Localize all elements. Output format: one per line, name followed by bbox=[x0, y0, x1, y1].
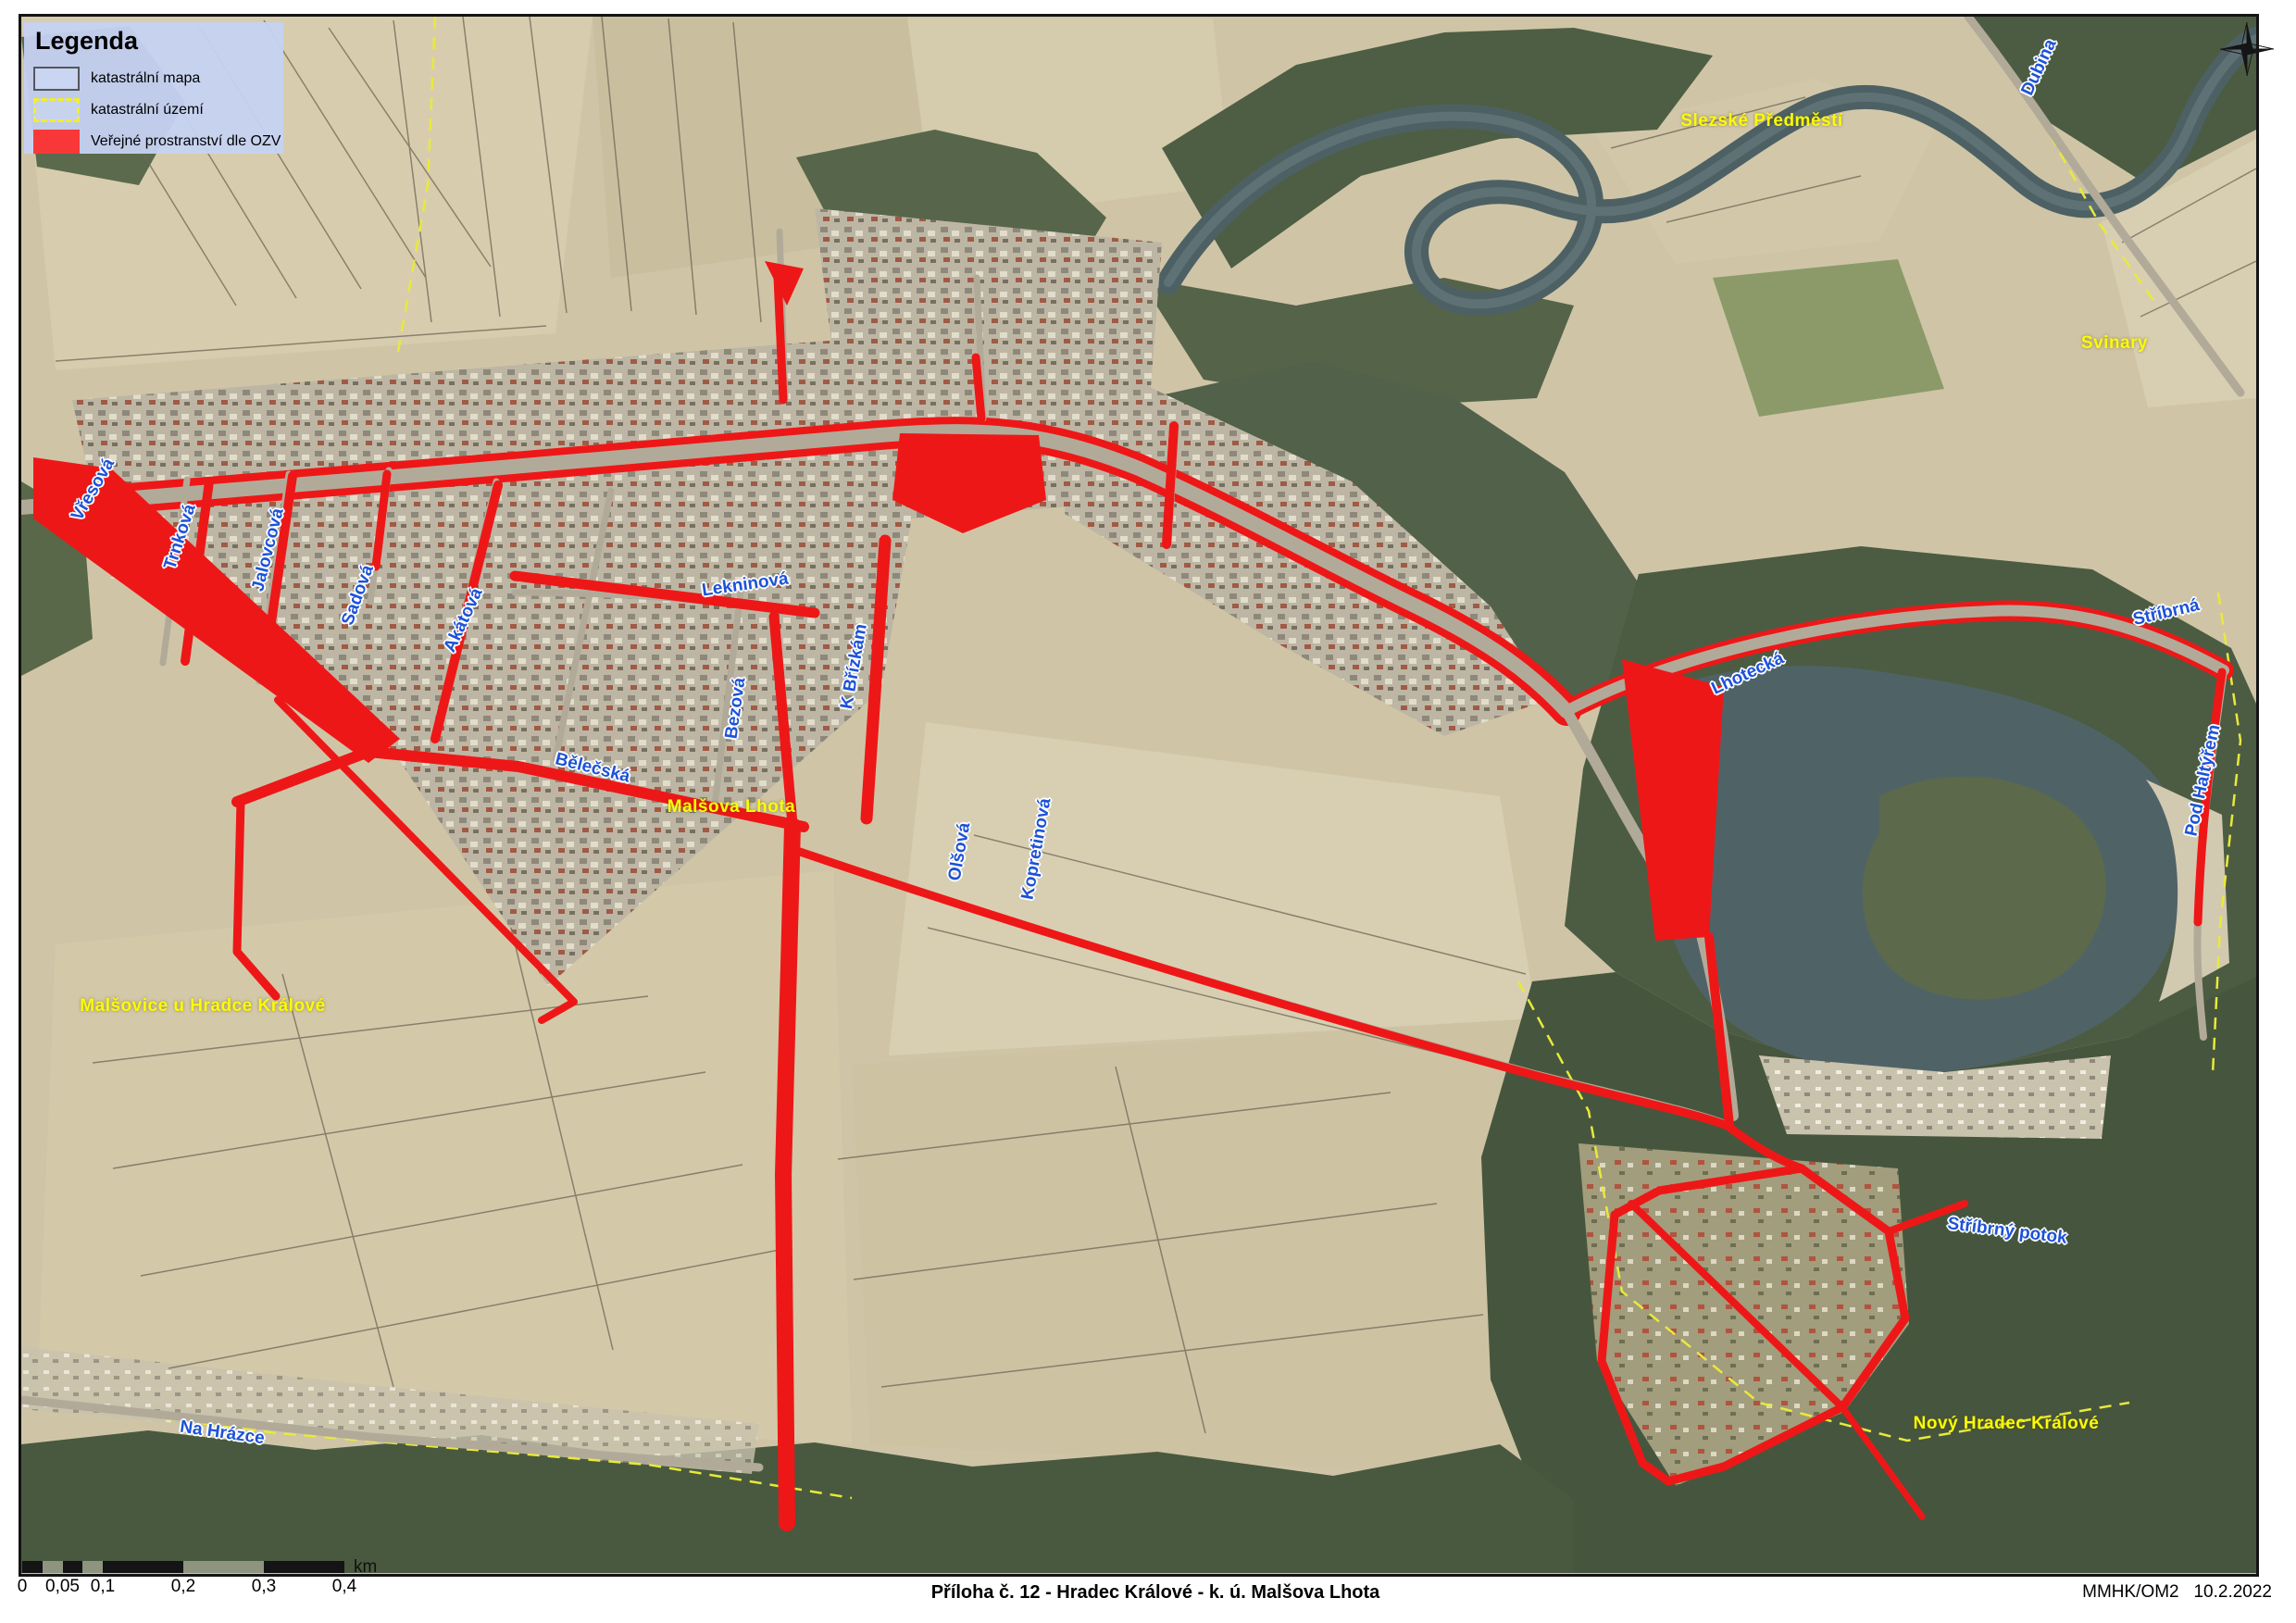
footer-date: 10.2.2022 bbox=[2193, 1582, 2272, 1602]
map-canvas bbox=[21, 17, 2256, 1574]
compass-north-arrow bbox=[2220, 20, 2274, 78]
legend-item-cadastral-area: katastrální území bbox=[33, 97, 283, 122]
scale-bar-segment bbox=[264, 1561, 344, 1573]
scale-bar-tick: 0,4 bbox=[332, 1577, 356, 1597]
legend-swatch-public-space bbox=[33, 130, 80, 154]
legend-title: Legenda bbox=[24, 22, 283, 59]
scale-bar-unit: km bbox=[354, 1557, 377, 1578]
footer-title: Příloha č. 12 - Hradec Králové - k. ú. M… bbox=[931, 1582, 1380, 1604]
footer-agency-date: MMHK/OM2 10.2.2022 bbox=[2082, 1582, 2272, 1603]
scale-bar-tick: 0,05 bbox=[45, 1577, 80, 1597]
scale-bar-ticks: 00,050,10,20,30,4 bbox=[0, 1577, 741, 1601]
scale-bar-segment bbox=[82, 1561, 103, 1573]
legend-item-public-space: Veřejné prostranství dle OZV bbox=[33, 129, 283, 154]
legend-items: katastrální mapakatastrální územíVeřejné… bbox=[24, 66, 283, 154]
scale-bar-segment bbox=[43, 1561, 63, 1573]
scale-bar-tick: 0,1 bbox=[91, 1577, 115, 1597]
scale-bar-segment bbox=[63, 1561, 83, 1573]
scale-bar-segment bbox=[103, 1561, 183, 1573]
scale-bar-segment bbox=[183, 1561, 264, 1573]
scale-bar-tick: 0,2 bbox=[171, 1577, 195, 1597]
legend: Legenda katastrální mapakatastrální územ… bbox=[24, 22, 283, 154]
scale-bar-segment bbox=[22, 1561, 43, 1573]
scale-bar-tick: 0,3 bbox=[252, 1577, 276, 1597]
legend-swatch-cadastral-area bbox=[33, 98, 80, 122]
map-frame bbox=[19, 14, 2259, 1577]
legend-label: Veřejné prostranství dle OZV bbox=[91, 133, 281, 150]
legend-swatch-cadastral-map bbox=[33, 67, 80, 91]
legend-label: katastrální mapa bbox=[91, 70, 200, 87]
legend-label: katastrální území bbox=[91, 102, 204, 119]
footer-agency: MMHK/OM2 bbox=[2082, 1582, 2179, 1602]
scale-bar-tick: 0 bbox=[18, 1577, 28, 1597]
legend-item-cadastral-map: katastrální mapa bbox=[33, 66, 283, 91]
scale-bar bbox=[22, 1561, 346, 1573]
